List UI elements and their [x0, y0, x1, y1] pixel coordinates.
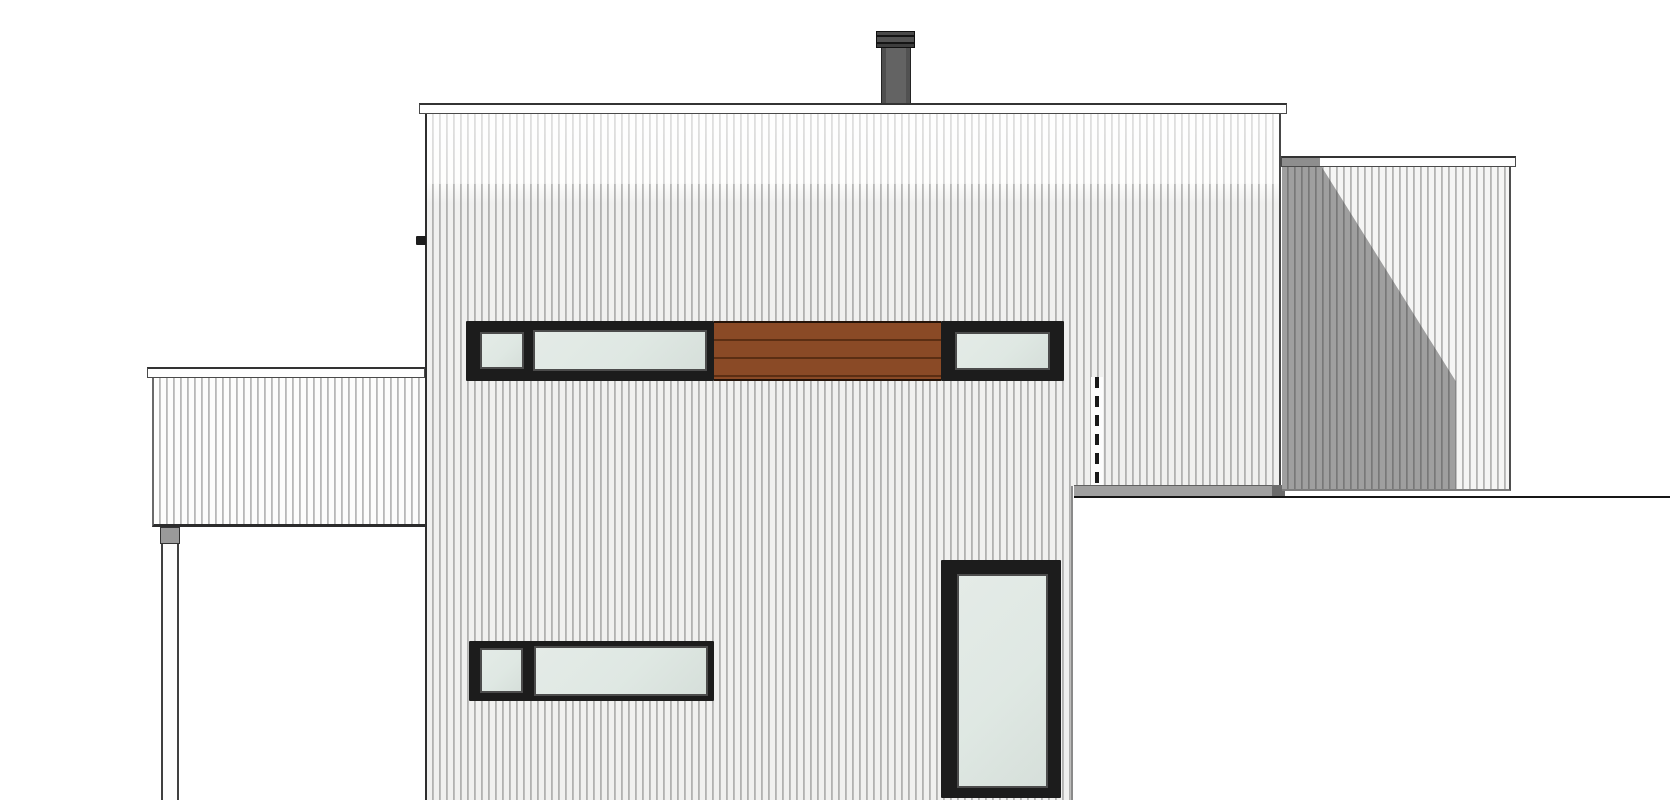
- chimney-cap: [876, 31, 915, 48]
- tall-window-frame: [941, 560, 1061, 798]
- hidden-edge-strip: [1091, 377, 1103, 486]
- right-wing-fascia: [1281, 156, 1516, 167]
- hidden-edge-dashed-line: [1095, 377, 1099, 486]
- right-wing-fascia-shadow: [1282, 158, 1320, 166]
- right-wing-cast-shadow: [1282, 167, 1509, 489]
- main-roof-fascia: [419, 103, 1287, 114]
- lower-window-long-pane: [534, 646, 708, 696]
- upper-window-right-frame: [941, 321, 1064, 381]
- lower-window-frame: [469, 641, 714, 701]
- upper-window-long-pane: [533, 330, 707, 371]
- tall-window-pane: [957, 574, 1048, 788]
- upper-window-small-pane: [480, 332, 524, 369]
- canopy-post: [161, 544, 179, 800]
- upper-window-right-pane: [955, 332, 1050, 370]
- right-wing-wall: [1282, 167, 1511, 491]
- lower-window-small-pane: [480, 648, 523, 693]
- canopy-post-cap: [160, 527, 180, 544]
- left-wing-fascia: [147, 367, 425, 378]
- elevation-drawing: [0, 0, 1670, 800]
- left-wing-wall: [152, 378, 425, 527]
- foreground-volume: [1074, 496, 1670, 800]
- chimney-body: [881, 48, 911, 104]
- parapet-cap-band: [1074, 485, 1285, 496]
- wood-slat-panel: [714, 321, 941, 381]
- upper-window-left-frame: [466, 321, 714, 381]
- wall-bracket-tick: [416, 236, 426, 245]
- main-facade-upper: [425, 114, 1281, 486]
